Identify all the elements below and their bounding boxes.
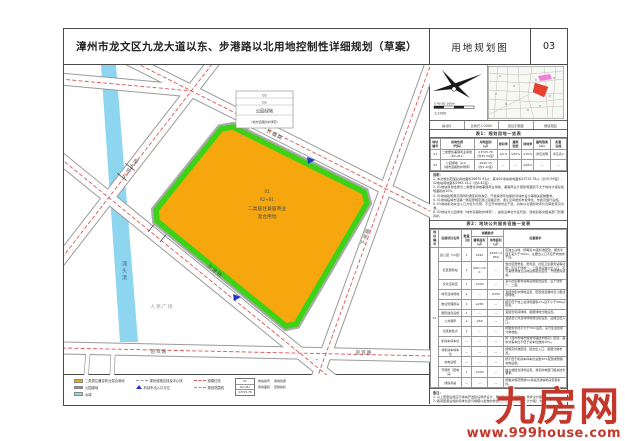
parcel-use-2: 混合用地 [257,213,276,220]
legend-boundary-group: 道路红线 规划范围线 [194,378,224,390]
map-legend: 二类居住兼容商业混合用地 公园绿地 水域 现状道路边线及中心线 机动车出入口方位… [64,374,429,404]
notes-section: 说明： 1. 本次规划范围总用地面积26670.93㎡，其中01地块用地面积23… [430,172,567,221]
north-arrow-icon: 0 40 80 160m 1:2000 [430,65,487,120]
sheet-number: 03 [531,29,567,64]
parcel-no: 01 [264,189,270,194]
facilities-table: 地块 编号 设施项目名称 数量 （处） 规模要求 设置要求 建筑面积 （㎡） 用… [430,229,567,390]
watermark-logo: 九房网 [467,388,621,426]
legend-label: 道路红线 [208,378,221,383]
legend-key-box: 01 R2+B1 23725.78 [235,378,255,395]
facility-row: 充电设施 — — — 按不低于机动车停车位总数30%配建或预留充电设施。 [431,357,567,367]
facility-row: 文化活动室 1 ≥200 — 宜与社区服务站等设施组合设置，设于建筑一、二层。 [431,279,567,289]
landuse-row-02: 02 公园绿地（G1） （城市道路防护绿带） 2945.15 （约4.42亩） … [431,160,567,171]
sheet-name: 用地规划图 [430,29,531,64]
callout-land-use: 公园绿地 [256,107,274,114]
title-block: 漳州市龙文区九龙大道以东、步港路以北用地控制性详细规划（草案） 用地规划图 03 [64,29,567,65]
plan-sheet: 漳州市龙文区九龙大道以东、步港路以北用地控制性详细规划（草案） 用地规划图 03 [63,28,568,406]
note-line: 3. 01地块建筑限高须同时满足机场净空、气象探测环境保护及城市设计等相关控制要… [433,194,564,198]
watermark: 九房网 www.999house.com [467,388,621,441]
legend-boundary-icon [194,387,206,388]
zoning-map: 九龙大道 长福路 下洲路 步港路 迎宾路 迎宾路 浦头港 人民广场 [64,65,429,374]
legend-label: 二类居住兼容商业混合用地 [85,378,125,383]
key-land-area: 23725.78 [236,389,254,394]
info-cell: 指北针 [430,121,465,129]
facility-row: 公共厕所 1 ≥60 — 宜结合公共活动场地或沿街设置，设独立出入口。 [431,316,567,326]
info-cell: 区位示意图 [499,121,534,129]
river-label: 浦头港 [121,260,127,282]
facility-row: 社区服务站 1 600～700 — 含社区居委会、警务室、社区卫生服务站等功能；… [431,262,567,280]
note-line: 2. 01地块用地性质为二类居住用地兼容商业用地，兼容商业计容建筑面积不大于地块… [433,185,564,193]
legend-label: 水域 [85,392,92,397]
key-label: 控制指标 [274,385,286,389]
callout-parcel-no: 02 [262,93,267,97]
legend-redline-icon [194,380,206,381]
road-label-yingbin-2: 迎宾路 [356,349,373,356]
info-panel: 0 40 80 160m 1:2000 [430,65,567,404]
landuse-row-01: 01 二类居住兼容商业用地（R2+B1） 23725.78 （约35.59亩） … [431,149,567,160]
facility-row: 体育活动场地 1 — ≥300 宜结合集中绿地设置，配置健身器材及儿童活动场地。 [431,289,567,299]
facility-row: 垃圾收集点 1 — — 按服务半径不大于70m设置，实行生活垃圾分类收集。 [431,326,567,336]
parcel-code: R2+B1 [260,197,274,202]
facility-row: 01 幼儿园（12班） 1 3240 4320～4860 应独立占地，按每班30… [431,248,567,262]
parcel-use-1: 二类居住兼容商业 [248,205,287,212]
legend-swatch-park [74,386,83,390]
plan-title: 漳州市龙文区九龙大道以东、步港路以北用地控制性详细规划（草案） [64,29,430,64]
info-cell: 规划范围 [534,121,568,129]
info-cell: 比例尺 1:2000 [465,121,500,129]
map-column: 九龙大道 长福路 下洲路 步港路 迎宾路 迎宾路 浦头港 人民广场 [64,65,430,404]
legend-fill-group: 二类居住兼容商业混合用地 公园绿地 水域 [74,378,125,396]
note-line: 4. 01地块临城市道路一侧应按规定退让道路红线，退让空间统筹布置绿化、市政及慢… [433,198,564,202]
legend-label: 规划范围线 [208,385,224,390]
landuse-table: 地块 编号 用地性质 （代码） 用地面积 （㎡） 容积率 建筑 密度 绿地率 建… [430,138,567,172]
legend-swatch-water [74,392,83,396]
table2-title: 表2：地块公共服务设施一览表 [430,221,567,229]
location-map [488,65,567,120]
facility-row: 开闭所（配电房） 1 ≥200 — 独立或结合建筑设置，满足供电部门相关技术要求… [431,367,567,378]
poi-label-peoples-square: 人民广场 [150,303,173,310]
facilities-header-row1: 地块 编号 设施项目名称 数量 （处） 规模要求 设置要求 [431,229,567,236]
road-label-yingbin-1: 迎宾路 [151,348,168,355]
legend-entrance-triangle-icon [136,385,142,389]
scalebar-ticks: 0 40 80 160m [434,102,455,106]
facility-row: 机动车停车位 — — — 按《漳州市城市规划管理技术规定》配建，其中访客车位不低… [431,336,567,346]
legend-key-labels: 地块编号 用地性质 用地面积 控制指标 [258,378,286,389]
zoning-map-svg: 九龙大道 长福路 下洲路 步港路 迎宾路 迎宾路 浦头港 人民广场 [64,65,430,375]
legend-swatch-residential [74,379,83,383]
landuse-table-header: 地块 编号 用地性质 （代码） 用地面积 （㎡） 容积率 建筑 密度 绿地率 建… [431,139,567,150]
legend-parcel-key: 01 R2+B1 23725.78 地块编号 用地性质 用地面积 控制指标 [235,378,286,395]
compass-box: 0 40 80 160m 1:2000 [430,65,488,120]
facility-row: 物业管理用房 1 ≥280 — 按不低于地上总建筑面积2‰且不小于280㎡配置。 [431,299,567,309]
table1-title: 表1：规划用地一览表 [430,130,567,138]
minor-road-casings [86,353,113,375]
panel-top-maps: 0 40 80 160m 1:2000 [430,65,567,121]
panel-info-row: 指北针 比例尺 1:2000 区位示意图 规划范围 [430,121,567,130]
scalebar-label: 1:2000 [434,112,446,116]
legend-label: 机动车出入口方位 [144,385,170,390]
key-label: 地块编号 [258,379,270,383]
note-line: 6. 02地块为公园绿地（城市道路防护绿带），由建设单位代征代建，建成后移交相关… [433,210,564,218]
callout-land-note: （城市道路防护绿带） [249,119,279,124]
note-line: 5. 01地块机动车出入口方位为示意，不应开向城市主干道，具体以交通影响评价及审… [433,202,564,210]
legend-line-group: 现状道路边线及中心线 机动车出入口方位 [136,378,183,390]
page: 漳州市龙文区九龙大道以东、步港路以北用地控制性详细规划（草案） 用地规划图 03 [0,0,625,441]
key-label: 用地性质 [274,379,286,383]
legend-label: 公园绿地 [85,385,98,390]
legend-road-line-icon [136,380,148,381]
watermark-url: www.999house.com [467,426,621,441]
location-map-svg [488,65,564,120]
facility-row: 非机动车停车位 — — — 按规定标准配建，结合出入口、组团分散布置。 [431,346,567,357]
callout-land-code: G1 [262,100,267,104]
key-label: 用地面积 [258,385,270,389]
facility-row: 居民健身设施 1 — — 宜结合宅间绿地、组团绿地分散设置。 [431,309,567,316]
legend-label: 现状道路边线及中心线 [150,378,183,383]
